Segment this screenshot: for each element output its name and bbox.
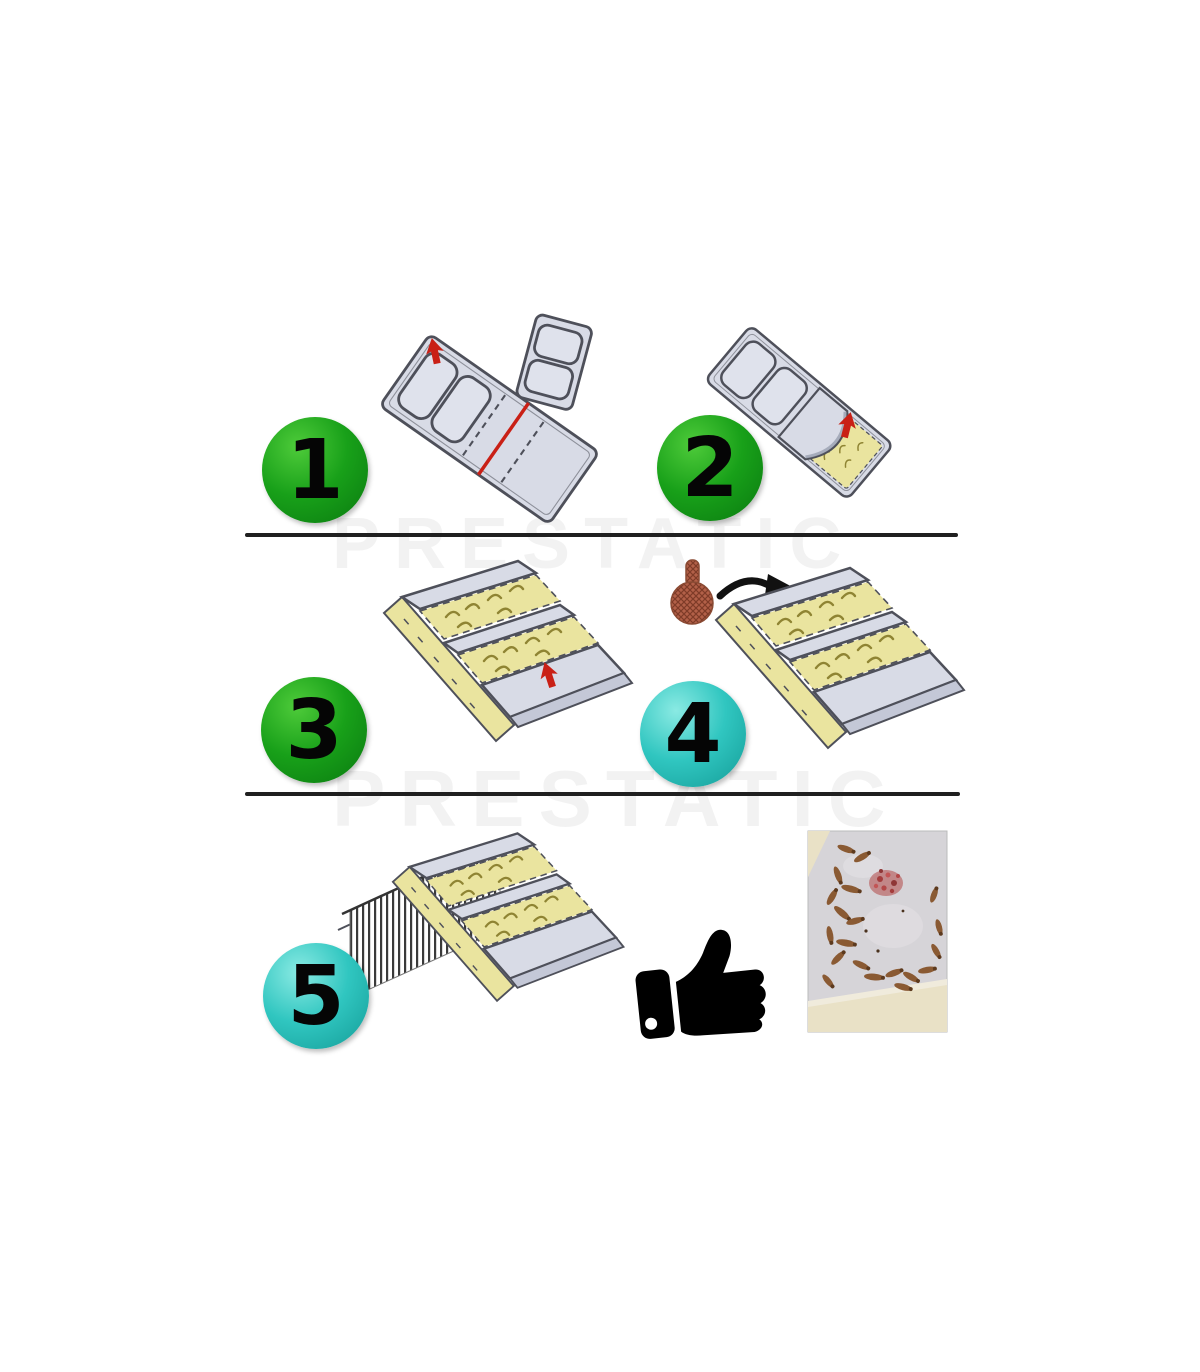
step-2-badge: 2 (657, 415, 763, 521)
wedge-trap (384, 561, 632, 741)
result-photo-trapped-insects (808, 831, 947, 1032)
step-1-illustration-flat-sheet (375, 308, 610, 530)
step-3-number: 3 (285, 683, 342, 778)
section-divider (245, 533, 958, 537)
step-5-number: 5 (287, 949, 344, 1044)
curved-black-arrow-icon (720, 581, 770, 596)
wedge-trap (393, 833, 624, 1000)
step-4-badge: 4 (640, 681, 746, 787)
trap-sheet-flat (380, 254, 656, 524)
step-5-illustration-place-at-wall (336, 806, 608, 1021)
bait-capsule-icon (671, 560, 713, 624)
wedge-trap (716, 568, 964, 748)
step-5-badge: 5 (263, 943, 369, 1049)
section-divider (245, 792, 960, 796)
step-1-number: 1 (286, 423, 343, 518)
step-4-number: 4 (664, 687, 721, 782)
lifted-flap (515, 314, 593, 411)
step-1-badge: 1 (262, 417, 368, 523)
instruction-sheet: PRESTATIC PRESTATIC 1 2 (0, 0, 1200, 1372)
step-3-illustration-folded-trap (368, 553, 636, 748)
thumbs-up-icon (630, 918, 770, 1040)
step-3-badge: 3 (261, 677, 367, 783)
step-2-number: 2 (681, 421, 738, 516)
